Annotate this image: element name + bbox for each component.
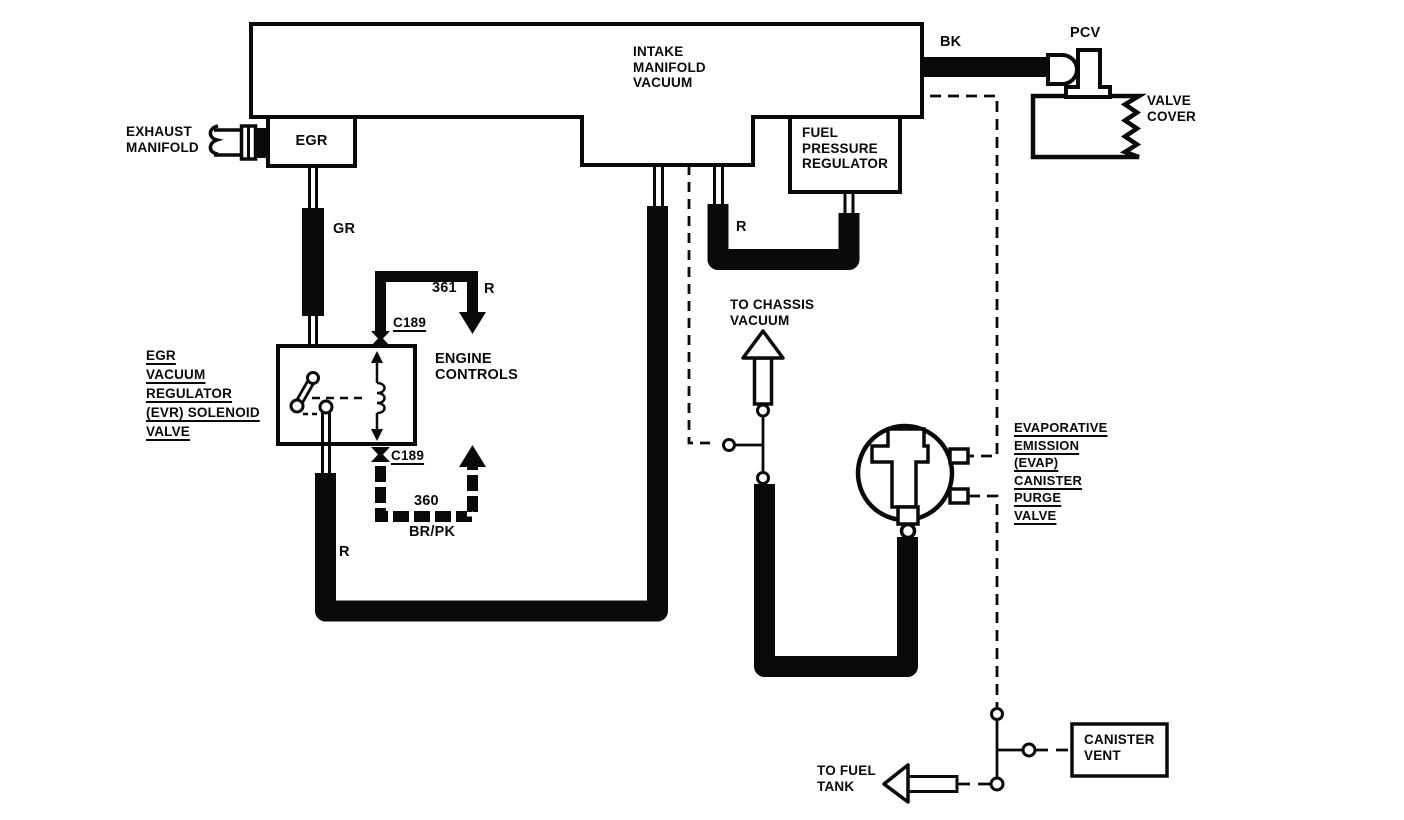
evr-pivot-top-circle <box>308 373 319 384</box>
fuel-tank-arrow-head <box>884 765 908 802</box>
chassis-arrow-head <box>743 331 783 358</box>
fuel-pressure-regulator-label: FUEL PRESSURE REGULATOR <box>802 125 888 172</box>
evap-purge-tab-upper <box>950 449 968 463</box>
purge-hose-inlet-circle <box>758 473 769 484</box>
manifold-port-2 <box>715 165 723 205</box>
exhaust-manifold-label: EXHAUST MANIFOLD <box>126 124 199 155</box>
to-chassis-vacuum-label: TO CHASSIS VACUUM <box>730 297 814 328</box>
chassis-arrow-shaft <box>755 358 772 404</box>
engine-controls-label: ENGINE CONTROLS <box>435 351 518 383</box>
c189-top-label: C189 <box>393 315 426 331</box>
egr-stem-upper <box>310 166 317 209</box>
evap-purge-outlet-circle <box>902 525 915 538</box>
vent-line-circle-right <box>1023 744 1035 756</box>
evap-purge-outlet-fitting <box>898 507 918 524</box>
gr-hose-label: GR <box>333 221 355 237</box>
wire-361-color-label: R <box>484 281 495 297</box>
pcv-label: PCV <box>1070 25 1100 41</box>
wire-361-label: 361 <box>432 280 457 296</box>
fuel-tank-arrow-shaft <box>906 777 957 792</box>
vacuum-diagram: INTAKE MANIFOLD VACUUM EXHAUST MANIFOLD … <box>0 0 1404 820</box>
connector-c189-bottom <box>371 447 390 462</box>
wire-360-color-label: BR/PK <box>409 524 455 540</box>
evap-purge-tab-lower <box>950 489 968 503</box>
junction-circle-left <box>724 440 735 451</box>
fpr-port <box>845 192 853 214</box>
valve-cover-shape <box>1033 96 1139 157</box>
canister-vent-label: CANISTER VENT <box>1084 732 1155 764</box>
vent-line-circle-top <box>992 709 1003 720</box>
bk-hose-label: BK <box>940 34 961 50</box>
chassis-arrow-port-circle <box>758 405 769 416</box>
dashed-line-purge-to-vent <box>969 496 997 708</box>
evr-pivot-left-circle <box>291 400 303 412</box>
evr-outlet-circle <box>320 401 332 413</box>
wire-360-arrow <box>459 445 486 467</box>
pcv-hose-fitting <box>1048 55 1077 84</box>
to-fuel-tank-label: TO FUEL TANK <box>817 763 876 794</box>
wire-361-arrow <box>459 312 486 334</box>
c189-bottom-label: C189 <box>391 448 424 464</box>
evap-purge-valve-label: EVAPORATIVE EMISSION (EVAP) CANISTER PUR… <box>1014 419 1107 524</box>
valve-cover-label: VALVE COVER <box>1147 93 1196 124</box>
hose-r-evr-label: R <box>339 544 350 560</box>
bk-hose <box>922 57 1049 77</box>
dashed-line-manifold-to-purge <box>930 96 997 456</box>
fuel-tank-line-circle <box>991 778 1003 790</box>
egr-label: EGR <box>268 117 355 166</box>
hose-r-fpr-label: R <box>736 219 747 235</box>
manifold-port-1 <box>655 165 663 207</box>
gr-hose <box>302 208 324 316</box>
connector-c189-top <box>371 331 390 346</box>
evr-valve-label: EGR VACUUM REGULATOR (EVR) SOLENOID VALV… <box>146 346 260 441</box>
intake-manifold-label: INTAKE MANIFOLD VACUUM <box>633 44 706 91</box>
wire-360-label: 360 <box>414 493 439 509</box>
